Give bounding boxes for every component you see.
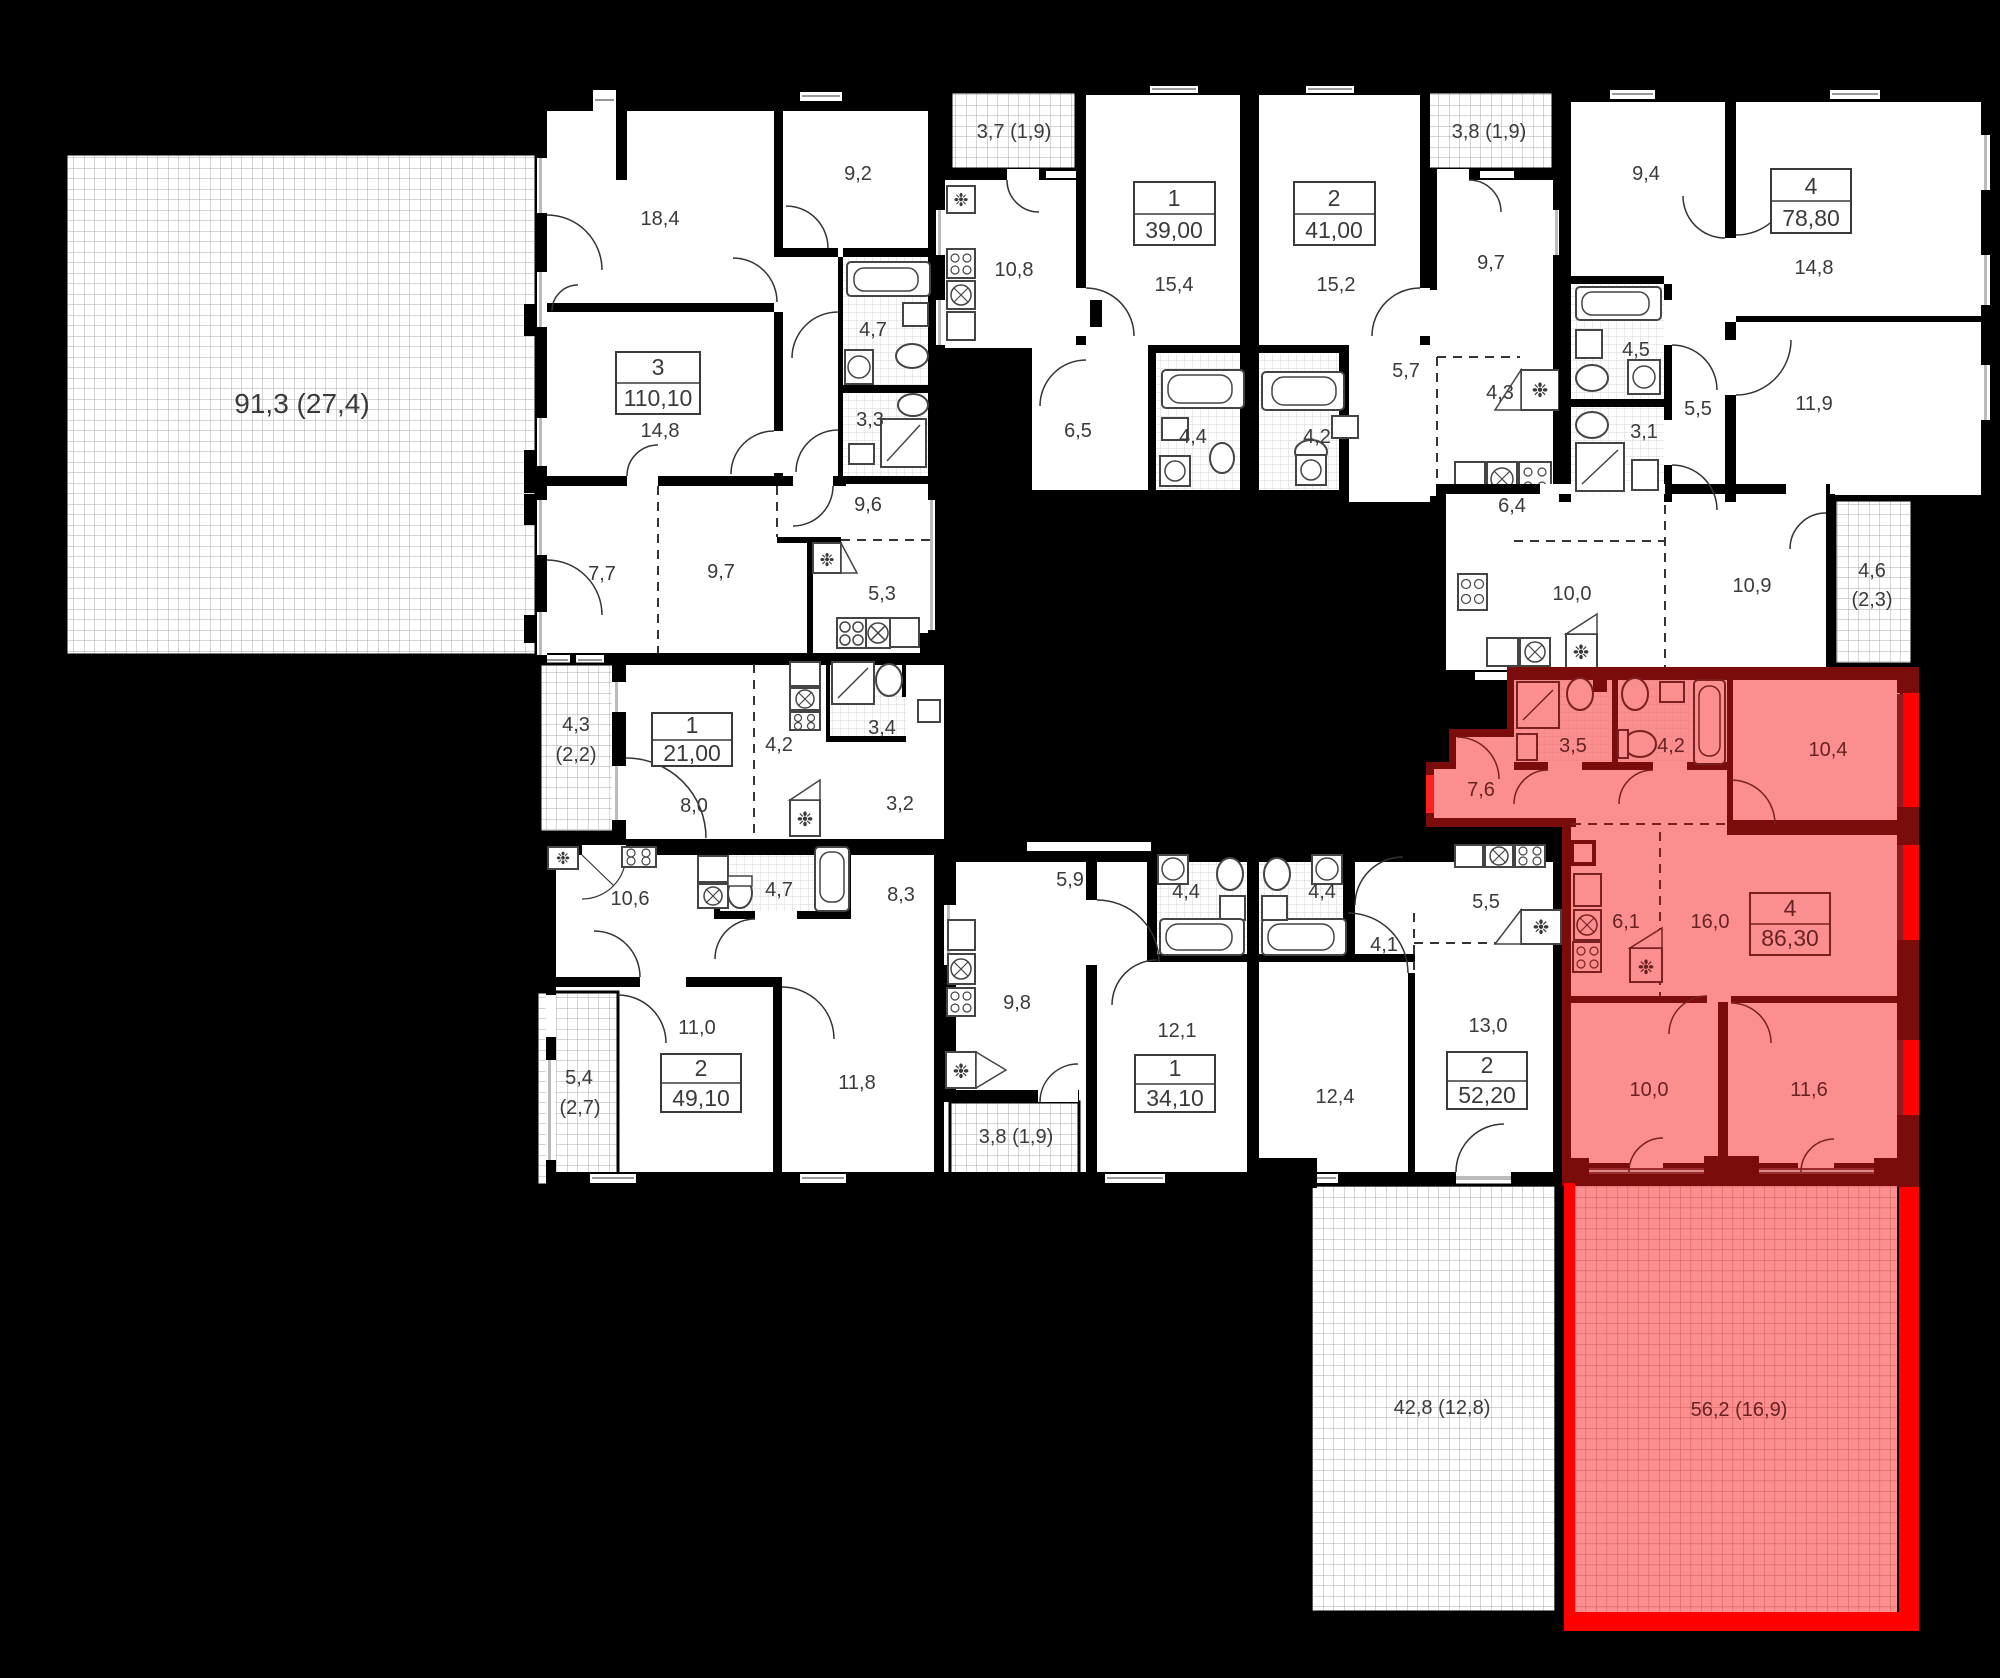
svg-text:49,10: 49,10: [672, 1085, 730, 1111]
svg-text:4: 4: [1805, 173, 1818, 199]
svg-text:3,3: 3,3: [856, 409, 884, 431]
svg-text:2: 2: [695, 1055, 708, 1081]
svg-text:2: 2: [1328, 185, 1341, 211]
svg-text:7,6: 7,6: [1467, 779, 1495, 801]
svg-text:14,8: 14,8: [1795, 257, 1834, 279]
svg-text:4,2: 4,2: [765, 734, 793, 756]
svg-text:2: 2: [1481, 1052, 1494, 1078]
svg-text:3,4: 3,4: [868, 717, 896, 739]
svg-text:9,7: 9,7: [1477, 252, 1505, 274]
svg-text:4,4: 4,4: [1179, 426, 1207, 448]
svg-text:5,9: 5,9: [1056, 869, 1084, 891]
svg-text:5,4: 5,4: [565, 1067, 593, 1089]
svg-text:39,00: 39,00: [1145, 217, 1203, 243]
svg-text:78,80: 78,80: [1782, 205, 1840, 231]
svg-text:3,7 (1,9): 3,7 (1,9): [977, 121, 1051, 143]
svg-text:1: 1: [686, 712, 699, 738]
svg-text:41,00: 41,00: [1305, 217, 1363, 243]
svg-text:❉: ❉: [1638, 957, 1655, 979]
svg-text:4,1: 4,1: [1370, 934, 1398, 956]
svg-text:12,1: 12,1: [1158, 1020, 1197, 1042]
svg-text:❉: ❉: [953, 190, 968, 210]
svg-text:15,2: 15,2: [1317, 274, 1356, 296]
svg-text:10,6: 10,6: [611, 888, 650, 910]
svg-text:56,2 (16,9): 56,2 (16,9): [1691, 1399, 1788, 1421]
svg-text:(2,3): (2,3): [1851, 589, 1892, 611]
svg-text:3,8 (1,9): 3,8 (1,9): [1452, 121, 1526, 143]
svg-text:13,0: 13,0: [1469, 1015, 1508, 1037]
svg-text:5,5: 5,5: [1472, 891, 1500, 913]
svg-text:4,6: 4,6: [1858, 560, 1886, 582]
svg-text:❉: ❉: [819, 550, 834, 570]
svg-text:4,3: 4,3: [1486, 382, 1514, 404]
svg-text:4,7: 4,7: [859, 319, 887, 341]
svg-text:3,1: 3,1: [1630, 421, 1658, 443]
svg-text:4: 4: [1784, 895, 1797, 921]
svg-text:5,5: 5,5: [1684, 398, 1712, 420]
svg-text:91,3 (27,4): 91,3 (27,4): [234, 388, 369, 419]
svg-text:4,5: 4,5: [1622, 339, 1650, 361]
svg-text:86,30: 86,30: [1761, 925, 1819, 951]
svg-text:12,4: 12,4: [1316, 1086, 1355, 1108]
svg-text:10,8: 10,8: [995, 259, 1034, 281]
svg-text:6,4: 6,4: [1498, 495, 1526, 517]
svg-text:9,6: 9,6: [854, 494, 882, 516]
svg-text:10,9: 10,9: [1733, 575, 1772, 597]
svg-text:4,4: 4,4: [1308, 881, 1336, 903]
svg-text:❉: ❉: [556, 849, 570, 868]
svg-text:❉: ❉: [797, 809, 814, 831]
svg-text:1: 1: [1169, 1055, 1182, 1081]
svg-text:5,7: 5,7: [1392, 360, 1420, 382]
svg-text:52,20: 52,20: [1458, 1082, 1516, 1108]
svg-text:3,2: 3,2: [886, 793, 914, 815]
svg-text:14,8: 14,8: [641, 420, 680, 442]
svg-text:3: 3: [652, 354, 665, 380]
svg-text:10,0: 10,0: [1553, 583, 1592, 605]
svg-text:4,2: 4,2: [1657, 735, 1685, 757]
svg-text:11,8: 11,8: [838, 1072, 875, 1094]
svg-text:1: 1: [1168, 185, 1181, 211]
svg-text:3,5: 3,5: [1559, 735, 1587, 757]
svg-text:❉: ❉: [1532, 380, 1549, 402]
svg-text:7,7: 7,7: [588, 563, 616, 585]
svg-text:11,9: 11,9: [1795, 393, 1832, 415]
svg-text:110,10: 110,10: [624, 385, 693, 411]
svg-text:10,4: 10,4: [1809, 739, 1848, 761]
svg-text:10,0: 10,0: [1630, 1079, 1669, 1101]
svg-text:9,4: 9,4: [1632, 163, 1660, 185]
svg-text:(2,7): (2,7): [559, 1097, 600, 1119]
svg-text:11,6: 11,6: [1790, 1079, 1827, 1101]
svg-text:❉: ❉: [1573, 642, 1590, 664]
svg-text:4,7: 4,7: [765, 879, 793, 901]
svg-text:18,4: 18,4: [641, 208, 680, 230]
svg-text:16,0: 16,0: [1691, 911, 1730, 933]
svg-text:42,8 (12,8): 42,8 (12,8): [1394, 1397, 1491, 1419]
svg-text:8,3: 8,3: [887, 884, 915, 906]
svg-text:9,7: 9,7: [707, 561, 735, 583]
svg-text:4,4: 4,4: [1172, 881, 1200, 903]
svg-text:11,0: 11,0: [678, 1017, 715, 1039]
svg-text:34,10: 34,10: [1146, 1085, 1204, 1111]
svg-text:6,1: 6,1: [1612, 911, 1640, 933]
svg-text:8,0: 8,0: [680, 795, 708, 817]
svg-text:9,8: 9,8: [1003, 992, 1031, 1014]
svg-text:21,00: 21,00: [663, 740, 721, 766]
svg-text:(2,2): (2,2): [555, 744, 596, 766]
svg-text:❉: ❉: [953, 1061, 970, 1083]
svg-text:❉: ❉: [1533, 917, 1550, 939]
svg-text:15,4: 15,4: [1155, 274, 1194, 296]
svg-text:5,3: 5,3: [868, 583, 896, 605]
svg-text:3,8 (1,9): 3,8 (1,9): [979, 1126, 1053, 1148]
svg-text:4,3: 4,3: [562, 714, 590, 736]
svg-text:4,2: 4,2: [1303, 426, 1331, 448]
svg-text:6,5: 6,5: [1064, 420, 1092, 442]
svg-text:9,2: 9,2: [844, 163, 872, 185]
